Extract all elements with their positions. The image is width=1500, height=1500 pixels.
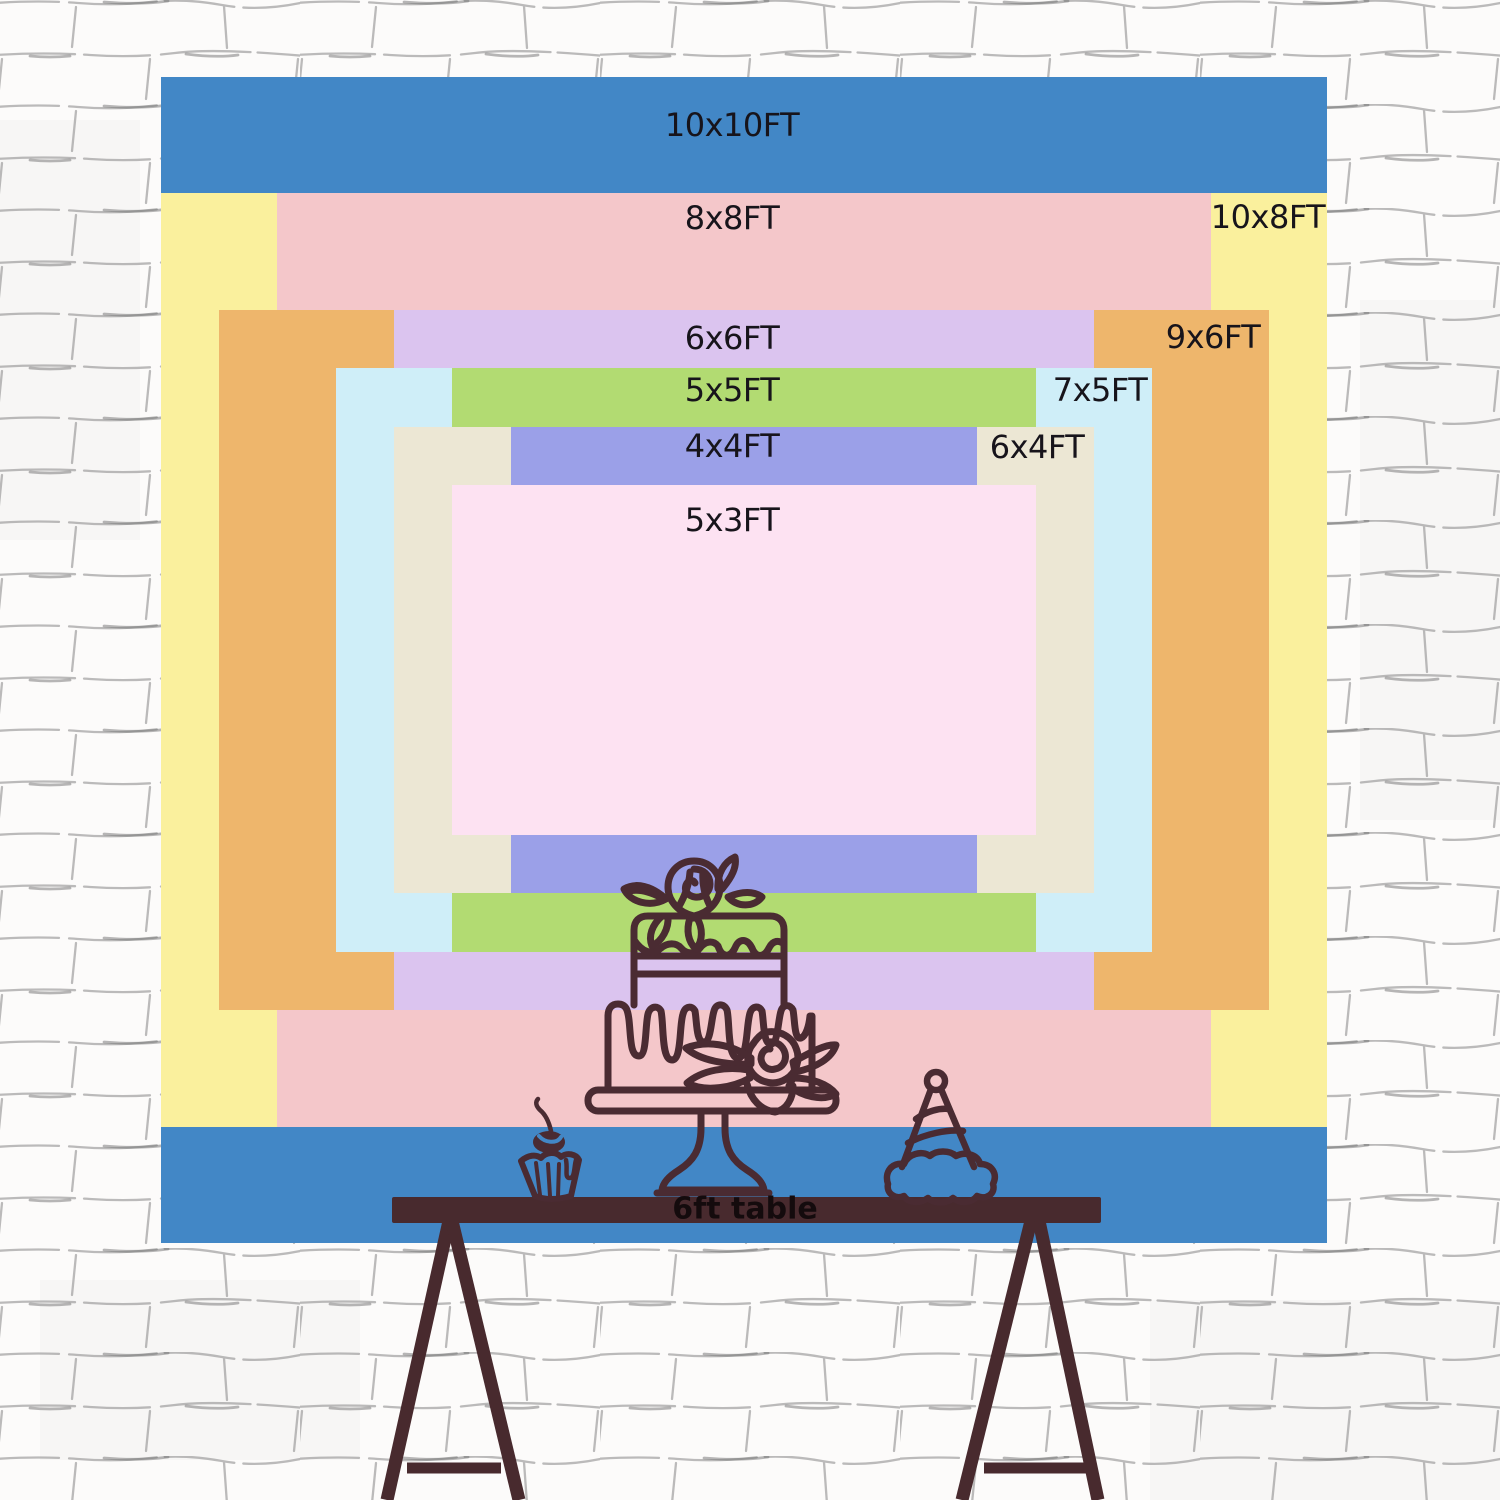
two-tier-cake-icon [588,857,836,1193]
party-hat-icon [887,1072,995,1203]
table-trestle-left-icon [387,1221,519,1500]
cupcake-icon [521,1099,579,1199]
table-length-label: 6ft table [672,1192,817,1227]
table-trestle-right-icon [962,1221,1098,1500]
table-scene-artwork [0,0,1500,1500]
backdrop-size-chart: 10x10FT 10x8FT 8x8FT 9x6FT 6x6FT 7x5FT 5… [0,0,1500,1500]
